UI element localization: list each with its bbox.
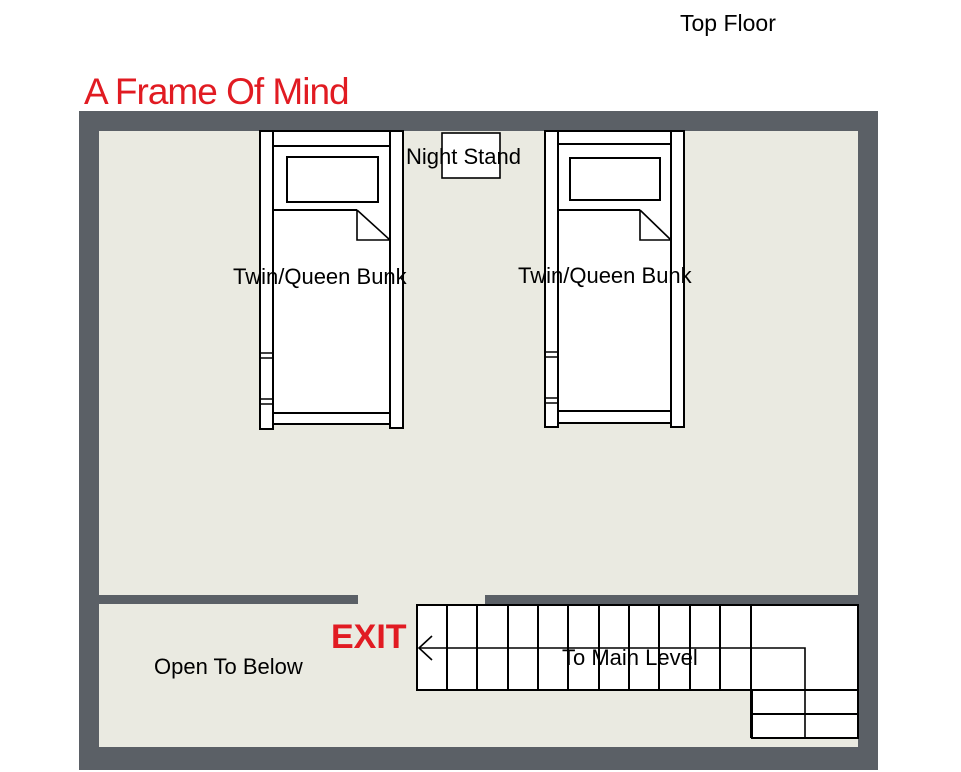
pillow	[287, 157, 378, 202]
to-main-level-label: To Main Level	[562, 646, 698, 670]
pillow	[570, 158, 660, 200]
staircase	[417, 605, 858, 738]
exit-label: EXIT	[331, 619, 407, 656]
stair-outline	[417, 605, 858, 738]
bunk-right-label: Twin/Queen Bunk	[518, 264, 692, 288]
night-stand-label: Night Stand	[406, 145, 521, 169]
floor-plan-page: Top Floor A Frame Of Mind	[0, 0, 961, 772]
bunk-left-label: Twin/Queen Bunk	[233, 265, 407, 289]
open-to-below-label: Open To Below	[154, 655, 303, 679]
floor-plan-linework	[0, 0, 961, 772]
